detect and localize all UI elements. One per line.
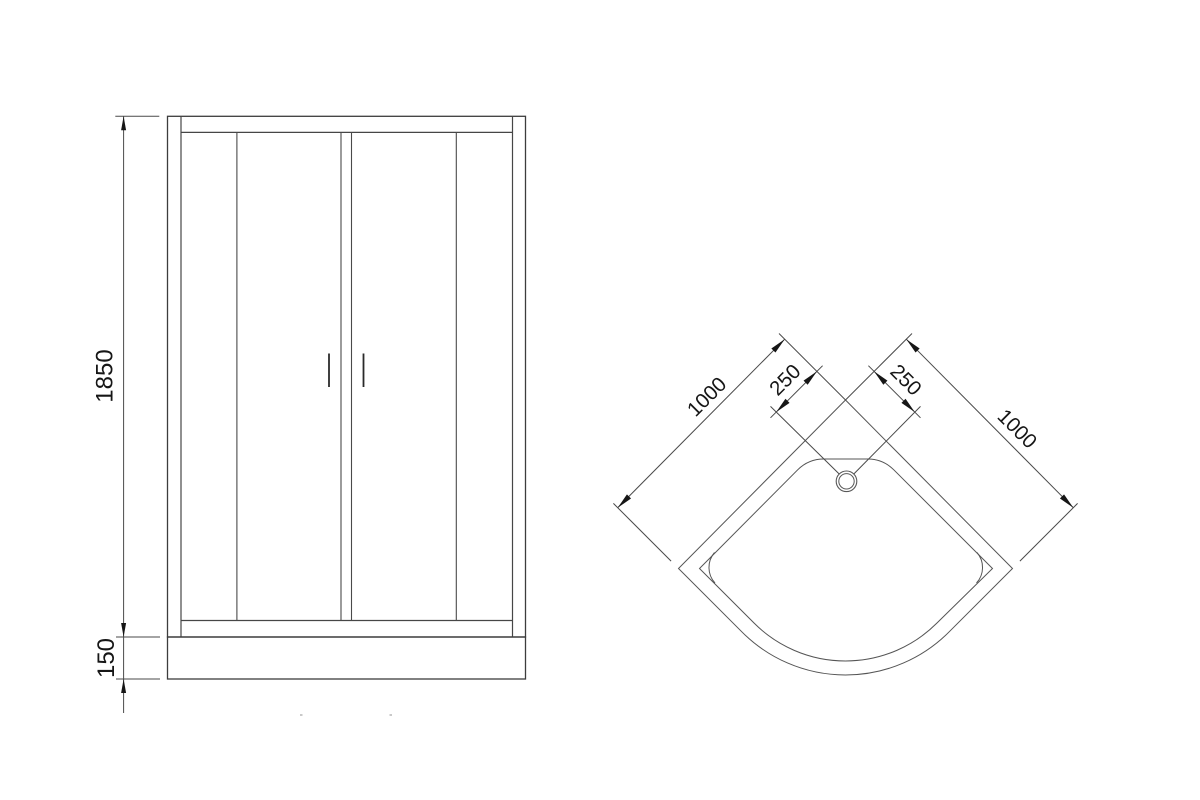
svg-text:150: 150 bbox=[93, 638, 120, 678]
svg-text:1850: 1850 bbox=[92, 349, 119, 402]
